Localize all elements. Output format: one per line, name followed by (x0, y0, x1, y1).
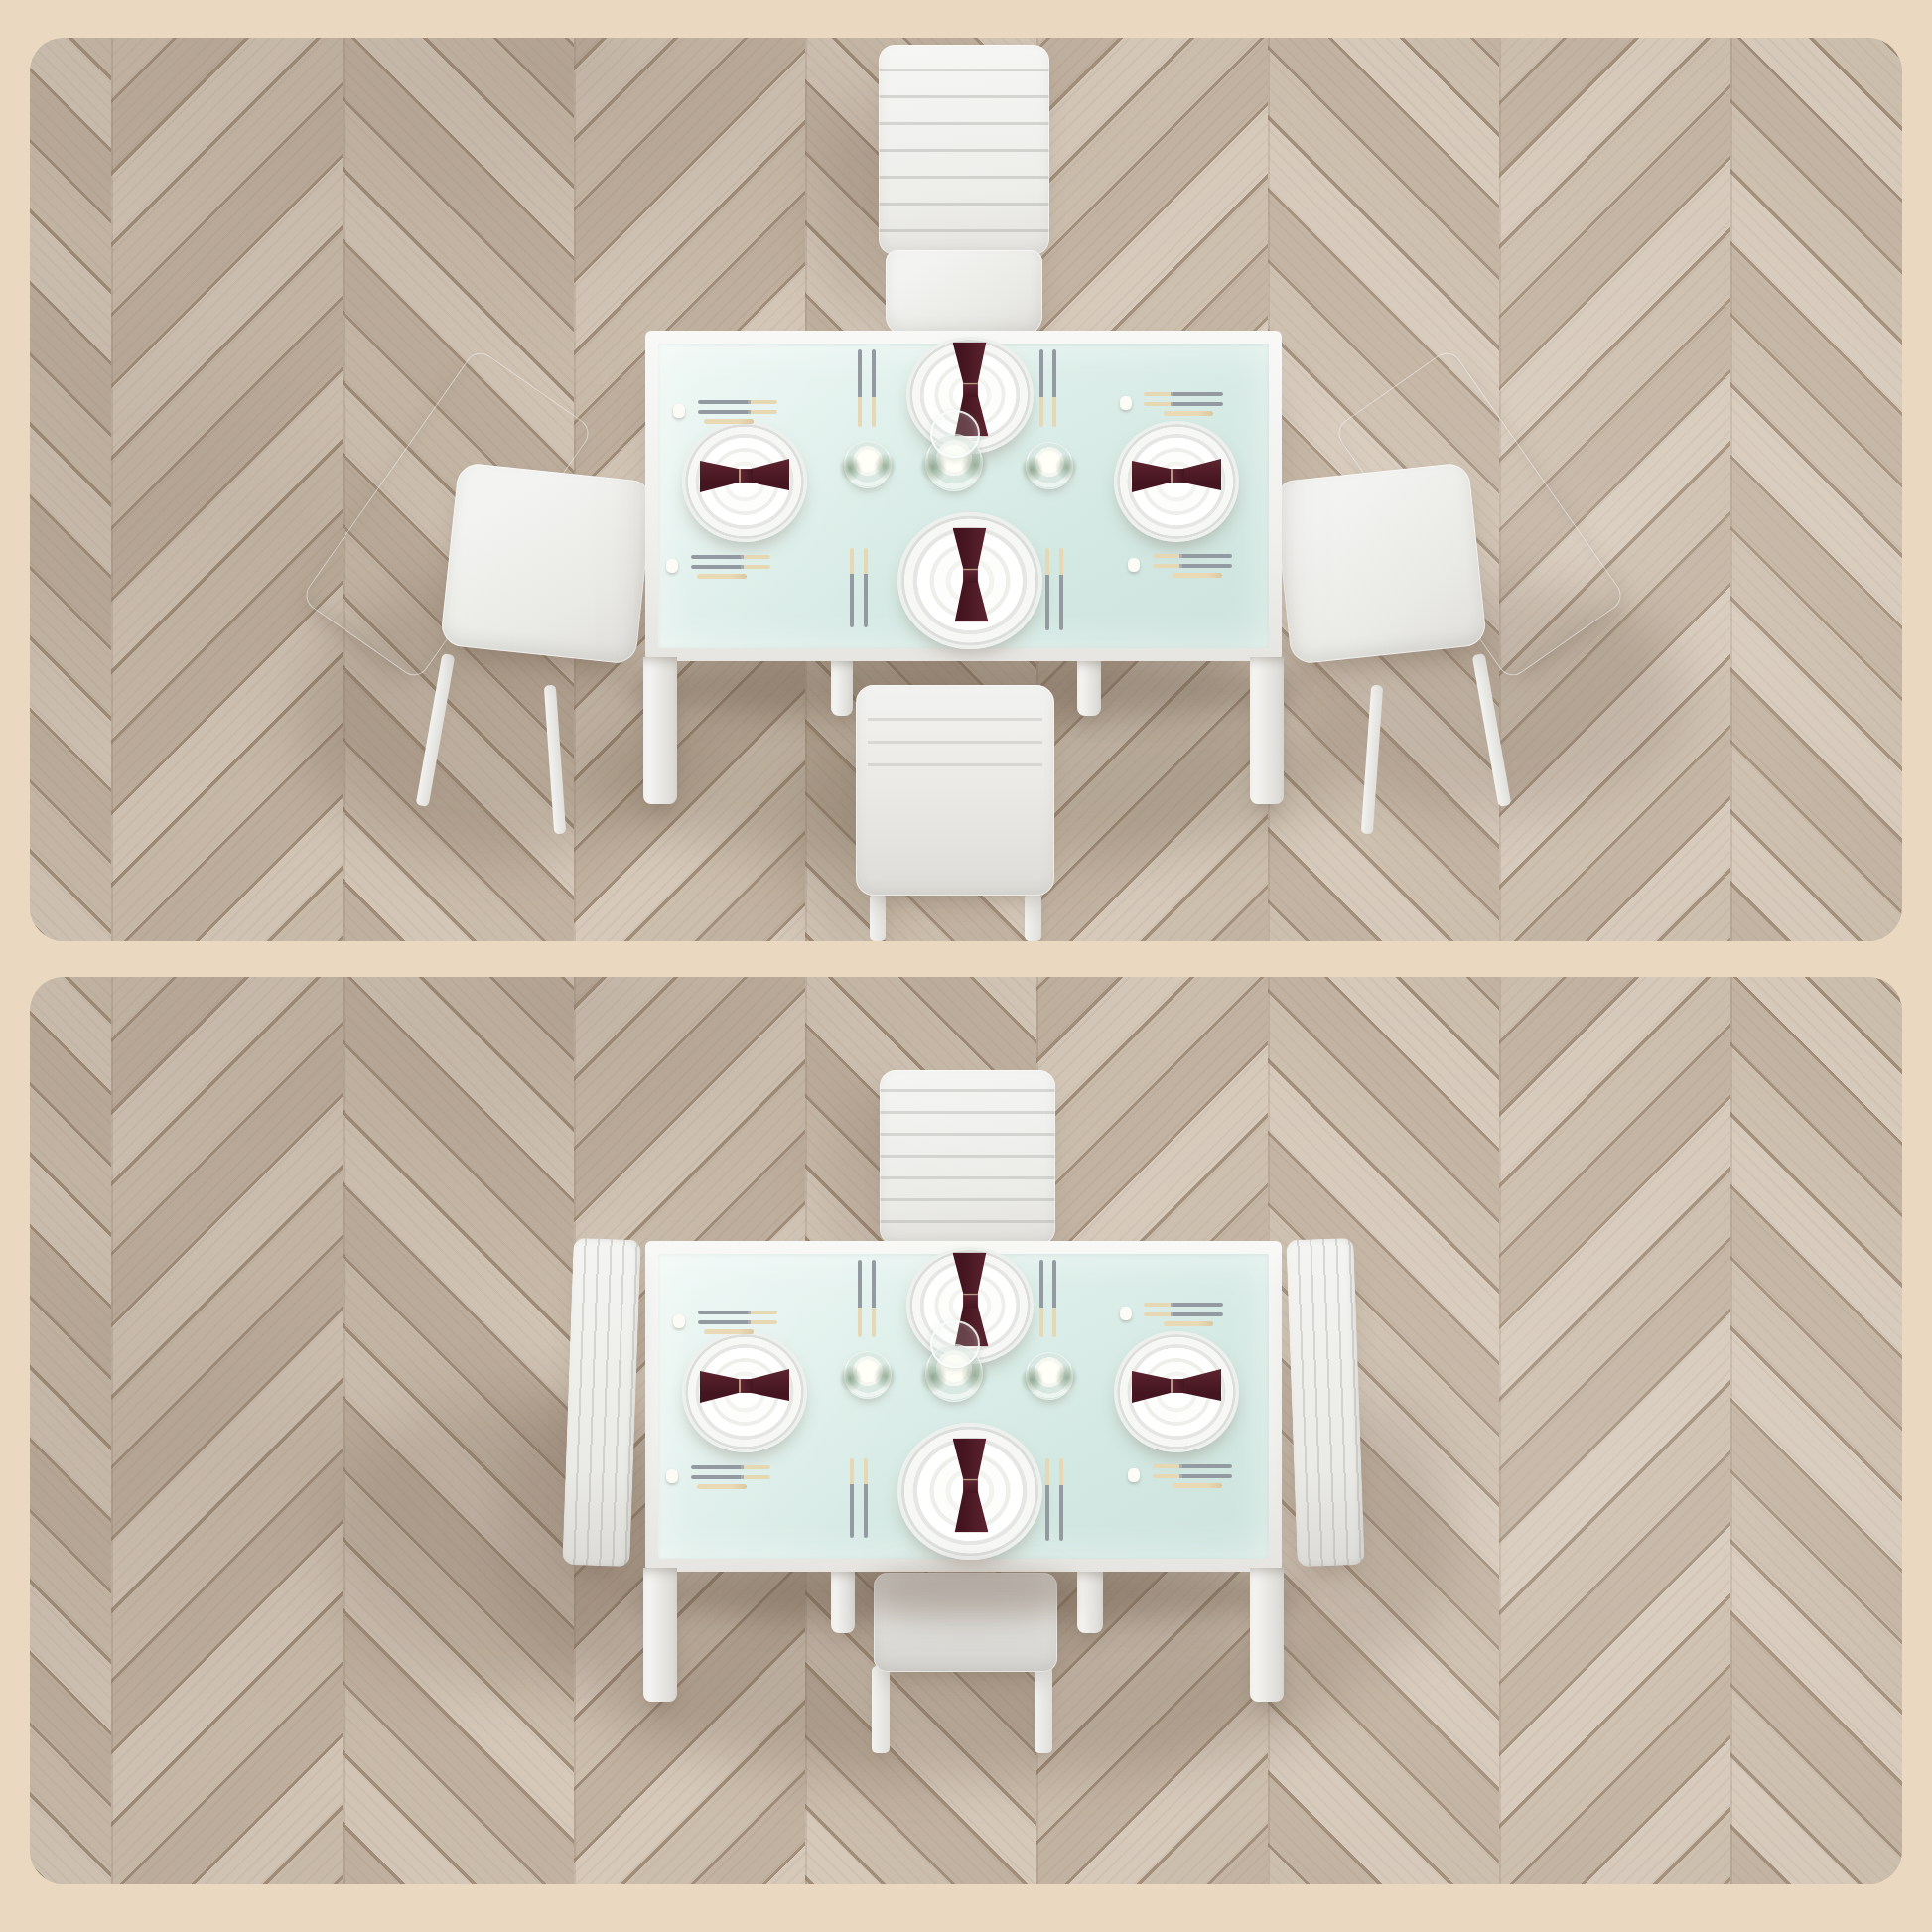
fork-icon (858, 1260, 862, 1337)
knife-icon (1052, 349, 1056, 427)
votive-candle (844, 441, 892, 488)
floor-plank-column (1730, 977, 1902, 1884)
fork-icon (850, 1458, 854, 1538)
tea-light (1128, 1468, 1140, 1482)
cutlery-set-northwest (690, 398, 781, 426)
table-leg (643, 1568, 677, 1702)
chair-south-leg (1035, 1666, 1052, 1753)
fork-icon (1173, 1483, 1222, 1488)
cutlery-set-southeast (1145, 552, 1236, 580)
cutlery-set-southeast (1145, 1462, 1236, 1490)
knife-icon (1039, 349, 1043, 427)
knife-icon (1153, 1464, 1232, 1468)
cutlery-set-southwest (683, 553, 774, 581)
knife-icon (1144, 392, 1223, 396)
chair-south-leg (1025, 894, 1041, 941)
fork-icon (1164, 411, 1213, 416)
floor-plank-column (111, 38, 344, 941)
knife-icon (691, 565, 770, 569)
knife-icon (1052, 1260, 1056, 1337)
table-leg (1077, 661, 1101, 716)
knife-icon (1039, 1260, 1043, 1337)
knife-icon (1059, 548, 1063, 630)
chair-west-back (562, 1238, 640, 1567)
chair-north-back (880, 1070, 1055, 1245)
panel-chairs-pushed-in (30, 977, 1902, 1884)
under-table-shadow (864, 1571, 1072, 1620)
fork-icon (872, 349, 876, 427)
table-leg (1077, 1572, 1103, 1633)
floor-plank-column (30, 38, 112, 941)
chair-south-leg (870, 894, 886, 941)
knife-icon (698, 400, 777, 404)
floor-plank-column (111, 977, 344, 1884)
knife-icon (691, 1475, 770, 1479)
cutlery-set-northeast (1136, 1301, 1227, 1328)
table-leg (643, 657, 677, 804)
tea-light (673, 404, 685, 418)
tea-light (1128, 558, 1140, 572)
knife-icon (1153, 564, 1232, 568)
knife-icon (1059, 1458, 1063, 1541)
cutlery-set-northwest (690, 1309, 781, 1336)
fork-icon (704, 1329, 754, 1334)
knife-icon (1144, 1303, 1223, 1307)
knife-icon (1045, 1458, 1049, 1541)
tea-light (1120, 396, 1132, 410)
dining-table (645, 1241, 1282, 1572)
table-leg (831, 1572, 855, 1633)
fork-icon (872, 1260, 876, 1337)
tea-light (666, 1469, 678, 1483)
tea-light (666, 559, 678, 573)
floor-plank-column (30, 977, 112, 1884)
fork-icon (864, 1458, 868, 1538)
vase-glass-rim (930, 410, 980, 458)
votive-candle (1026, 1352, 1073, 1400)
knife-icon (691, 1465, 770, 1469)
knife-icon (698, 1311, 777, 1314)
tea-light (1120, 1307, 1132, 1320)
chair-east-back (1286, 1238, 1364, 1567)
cutlery-set-southwest (683, 1463, 774, 1491)
fork-icon (1164, 1321, 1213, 1326)
chair-south-back (856, 685, 1054, 896)
chair-north-seat (886, 250, 1042, 336)
dining-table (645, 331, 1282, 661)
image-root (0, 0, 1932, 1932)
knife-icon (1153, 1474, 1232, 1478)
knife-icon (691, 555, 770, 559)
votive-candle (844, 1351, 892, 1399)
knife-icon (698, 410, 777, 414)
table-leg (1250, 657, 1284, 804)
chair-south-leg (872, 1666, 890, 1753)
fork-icon (704, 419, 754, 424)
panel-chairs-pulled-out (30, 38, 1902, 941)
tea-light (673, 1314, 685, 1328)
knife-icon (698, 1320, 777, 1324)
chair-north-back (879, 45, 1049, 255)
votive-candle (1026, 442, 1073, 489)
fork-icon (858, 349, 862, 427)
chair-east-seat (1273, 462, 1487, 665)
chair-west-seat (440, 462, 654, 665)
fork-icon (1173, 573, 1222, 578)
fork-icon (697, 1484, 747, 1489)
table-leg (831, 661, 853, 716)
knife-icon (1144, 402, 1223, 406)
cutlery-set-northeast (1136, 390, 1227, 418)
table-leg (1250, 1568, 1284, 1702)
fork-icon (697, 574, 747, 579)
vase-glass-rim (930, 1320, 980, 1368)
fork-icon (850, 548, 854, 627)
floor-plank-column (1499, 977, 1731, 1884)
knife-icon (1153, 554, 1232, 558)
knife-icon (1045, 548, 1049, 630)
fork-icon (864, 548, 868, 627)
knife-icon (1144, 1312, 1223, 1316)
floor-plank-column (1730, 38, 1902, 941)
